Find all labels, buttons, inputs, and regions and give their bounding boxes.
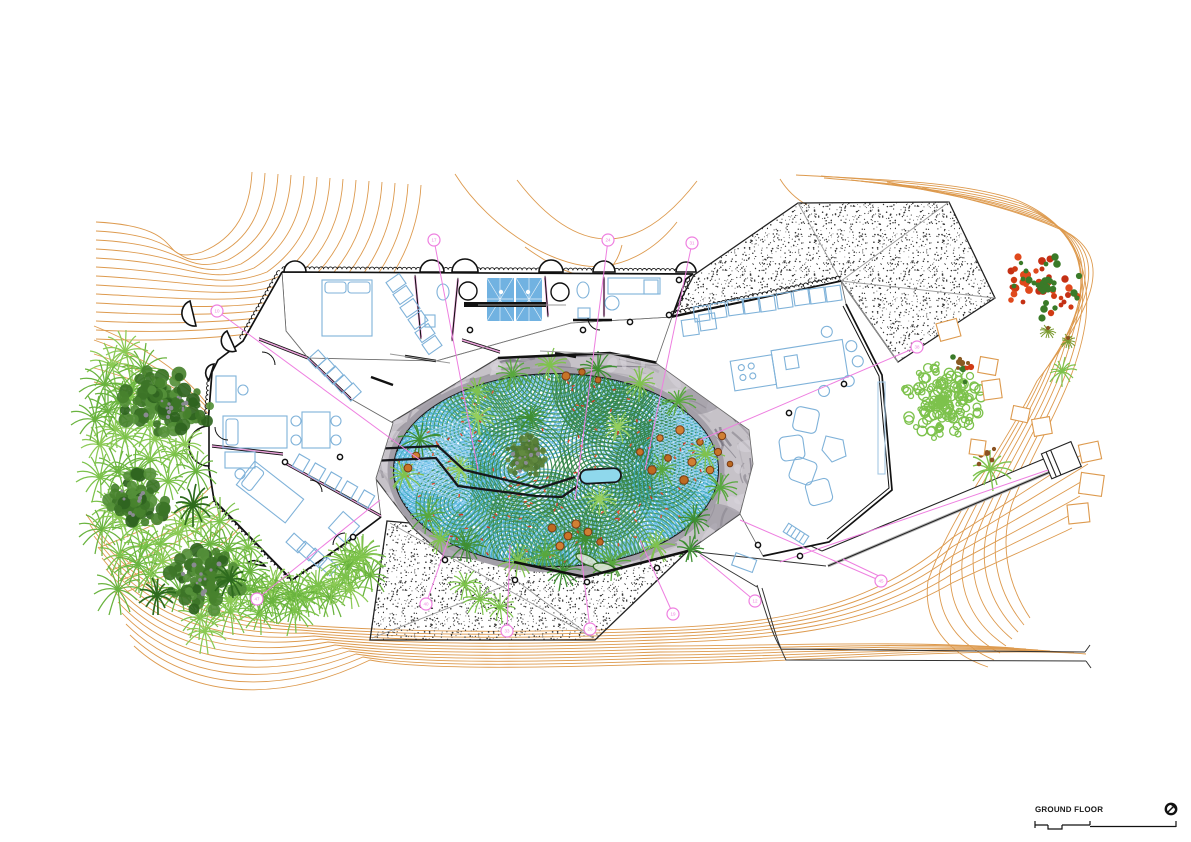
svg-text:38: 38 [914, 345, 920, 350]
svg-text:26: 26 [587, 627, 593, 632]
svg-text:47: 47 [254, 597, 260, 602]
svg-text:10: 10 [214, 309, 220, 314]
svg-text:12: 12 [752, 599, 758, 604]
svg-text:19: 19 [670, 612, 676, 617]
svg-text:33: 33 [504, 629, 510, 634]
svg-text:40: 40 [423, 602, 429, 607]
svg-text:31: 31 [689, 241, 695, 246]
svg-text:24: 24 [605, 238, 611, 243]
svg-text:45: 45 [878, 579, 884, 584]
svg-text:GROUND FLOOR: GROUND FLOOR [1035, 805, 1103, 814]
svg-text:17: 17 [431, 238, 437, 243]
